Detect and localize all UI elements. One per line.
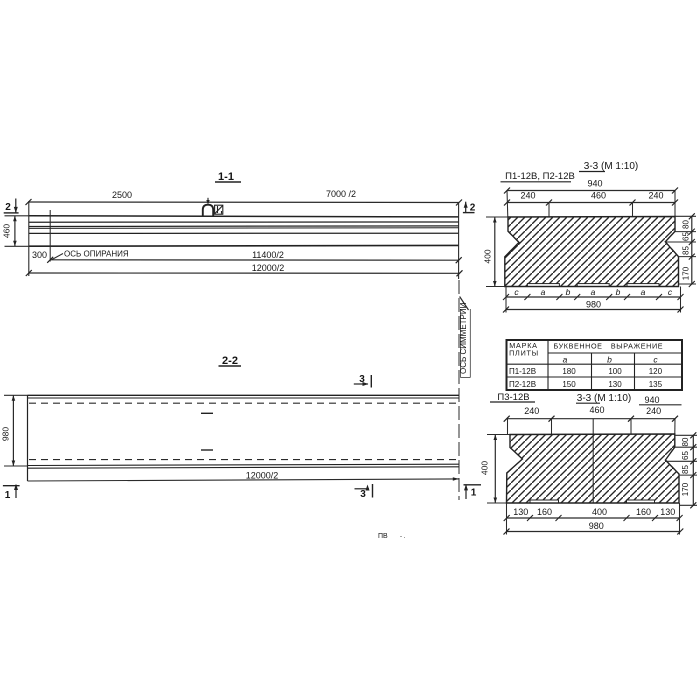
svg-text:460: 460 [2, 224, 12, 238]
svg-text:170: 170 [681, 482, 690, 496]
svg-text:а: а [541, 287, 546, 297]
svg-text:а: а [591, 287, 596, 297]
svg-text:135: 135 [649, 380, 663, 389]
svg-text:а: а [641, 287, 646, 297]
svg-text:240: 240 [520, 191, 535, 201]
svg-text:- .: - . [400, 534, 406, 540]
svg-text:460: 460 [591, 191, 606, 201]
svg-text:400: 400 [483, 249, 493, 263]
svg-text:240: 240 [524, 406, 539, 416]
svg-text:b: b [607, 355, 612, 365]
svg-text:П1-12В: П1-12В [509, 367, 536, 376]
svg-text:2: 2 [470, 203, 476, 214]
svg-text:с: с [668, 287, 673, 297]
svg-text:300: 300 [32, 250, 47, 260]
svg-text:240: 240 [648, 191, 663, 201]
svg-text:65: 65 [681, 451, 690, 460]
svg-text:130: 130 [513, 507, 528, 517]
svg-text:b: b [566, 287, 571, 297]
svg-text:460: 460 [589, 405, 604, 415]
svg-text:2500: 2500 [112, 190, 132, 200]
svg-text:980: 980 [589, 521, 604, 531]
svg-text:12000/2: 12000/2 [246, 471, 279, 481]
svg-text:100: 100 [608, 367, 622, 376]
svg-text:3-3 (М 1:10): 3-3 (М 1:10) [577, 393, 631, 404]
svg-text:ОСЬ ОПИРАНИЯ: ОСЬ ОПИРАНИЯ [64, 250, 129, 259]
svg-text:1: 1 [471, 488, 477, 499]
svg-text:170: 170 [682, 266, 691, 280]
svg-text:П1-12В, П2-12В: П1-12В, П2-12В [505, 171, 575, 182]
svg-text:130: 130 [660, 507, 675, 517]
svg-text:80: 80 [682, 220, 691, 229]
svg-text:980: 980 [586, 300, 601, 310]
svg-text:180: 180 [562, 367, 576, 376]
svg-text:80: 80 [681, 437, 690, 446]
svg-text:65: 65 [682, 232, 691, 241]
svg-text:130: 130 [608, 380, 622, 389]
svg-text:160: 160 [636, 507, 651, 517]
svg-text:3-3 (М 1:10): 3-3 (М 1:10) [584, 161, 638, 172]
svg-text:ПВ: ПВ [378, 533, 388, 540]
svg-text:ПЛИТЫ: ПЛИТЫ [509, 349, 539, 358]
svg-text:150: 150 [562, 380, 576, 389]
svg-text:940: 940 [587, 179, 602, 189]
svg-text:ОСЬ СИММЕТРИИ: ОСЬ СИММЕТРИИ [459, 302, 468, 374]
svg-text:2: 2 [5, 202, 11, 213]
svg-text:400: 400 [592, 507, 607, 517]
svg-text:ВЫРАЖЕНИЕ: ВЫРАЖЕНИЕ [611, 342, 663, 351]
svg-text:П3-12В: П3-12В [497, 392, 529, 403]
svg-text:12000/2: 12000/2 [252, 263, 285, 273]
svg-text:П2-12В: П2-12В [509, 380, 536, 389]
svg-text:980: 980 [1, 427, 11, 441]
svg-text:3: 3 [360, 489, 366, 500]
svg-text:b: b [616, 287, 621, 297]
svg-text:940: 940 [644, 395, 659, 405]
svg-text:1: 1 [5, 490, 11, 501]
svg-text:с: с [514, 287, 519, 297]
svg-text:120: 120 [649, 367, 663, 376]
svg-text:85: 85 [682, 246, 691, 255]
svg-text:a: a [563, 355, 568, 365]
svg-text:c: c [653, 355, 658, 365]
svg-text:7000 /2: 7000 /2 [326, 189, 356, 199]
svg-text:11400/2: 11400/2 [252, 250, 284, 260]
svg-text:240: 240 [646, 406, 661, 416]
svg-text:БУКВЕННОЕ: БУКВЕННОЕ [553, 342, 602, 351]
svg-text:400: 400 [480, 461, 490, 475]
svg-text:85: 85 [681, 465, 690, 474]
svg-text:160: 160 [537, 507, 552, 517]
